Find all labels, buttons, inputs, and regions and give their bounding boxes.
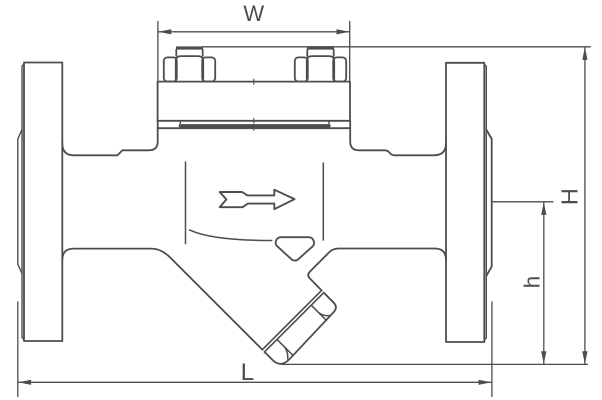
svg-text:h: h [520,276,545,289]
svg-text:L: L [241,359,255,386]
svg-text:W: W [243,1,264,26]
svg-text:H: H [557,188,583,205]
